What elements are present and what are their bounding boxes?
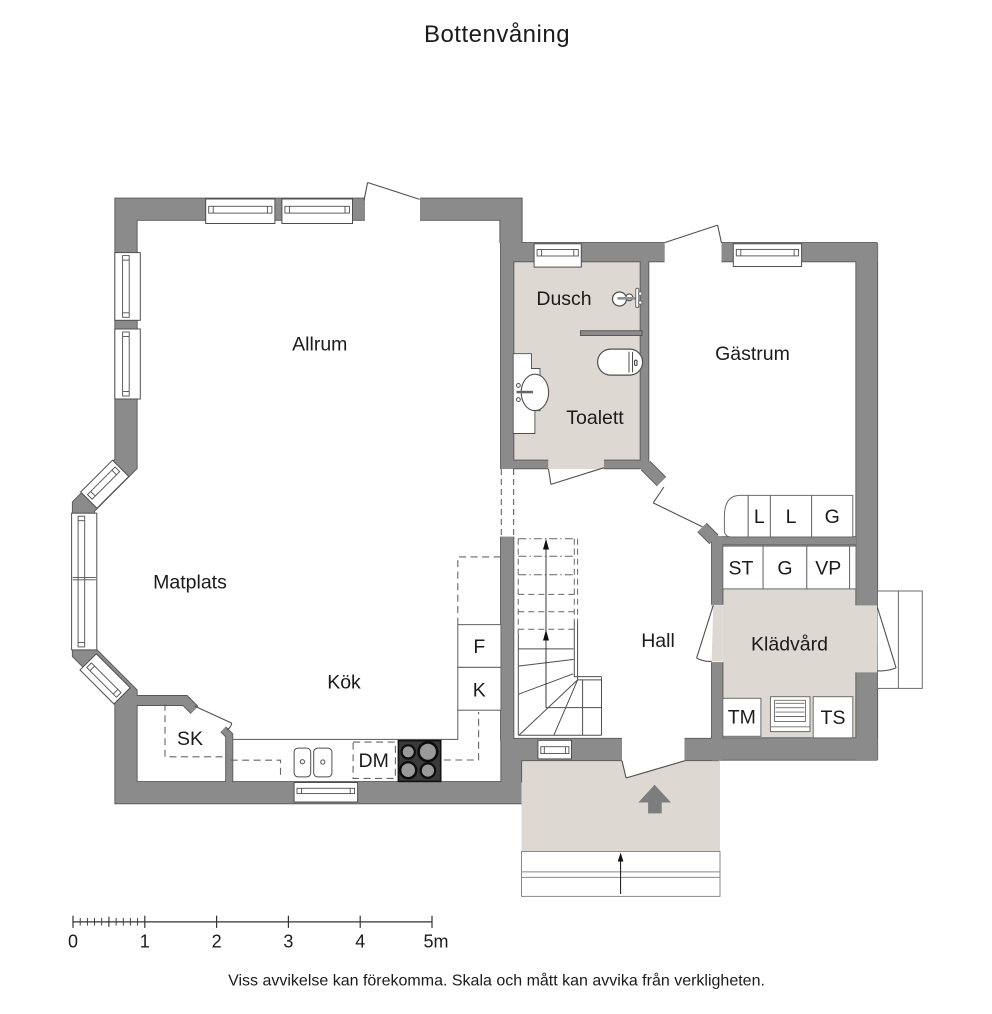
svg-text:Allrum: Allrum: [292, 333, 347, 355]
svg-text:Hall: Hall: [641, 630, 675, 652]
svg-text:G: G: [777, 557, 792, 579]
svg-text:L: L: [754, 506, 765, 528]
svg-text:Klädvård: Klädvård: [751, 633, 828, 655]
svg-text:Viss avvikelse kan förekomma.: Viss avvikelse kan förekomma. Skala och …: [228, 972, 765, 990]
svg-text:4: 4: [355, 932, 365, 952]
svg-text:Matplats: Matplats: [153, 572, 227, 594]
svg-text:Bottenvåning: Bottenvåning: [424, 21, 570, 48]
svg-text:TM: TM: [728, 707, 756, 729]
svg-text:0: 0: [68, 932, 78, 952]
svg-text:1: 1: [140, 932, 150, 952]
svg-text:3: 3: [283, 932, 293, 952]
svg-text:K: K: [473, 679, 486, 701]
svg-text:Gästrum: Gästrum: [715, 343, 790, 365]
svg-text:G: G: [825, 506, 840, 528]
svg-text:F: F: [473, 636, 485, 658]
svg-text:L: L: [786, 506, 797, 528]
svg-text:2: 2: [212, 932, 222, 952]
svg-text:ST: ST: [729, 557, 754, 579]
svg-text:TS: TS: [821, 707, 846, 729]
svg-text:Kök: Kök: [327, 671, 361, 693]
svg-text:VP: VP: [815, 557, 841, 579]
svg-text:Toalett: Toalett: [566, 407, 624, 429]
svg-text:Dusch: Dusch: [536, 288, 591, 310]
svg-text:5m: 5m: [423, 932, 448, 952]
svg-text:SK: SK: [177, 728, 203, 750]
svg-text:DM: DM: [359, 750, 389, 772]
